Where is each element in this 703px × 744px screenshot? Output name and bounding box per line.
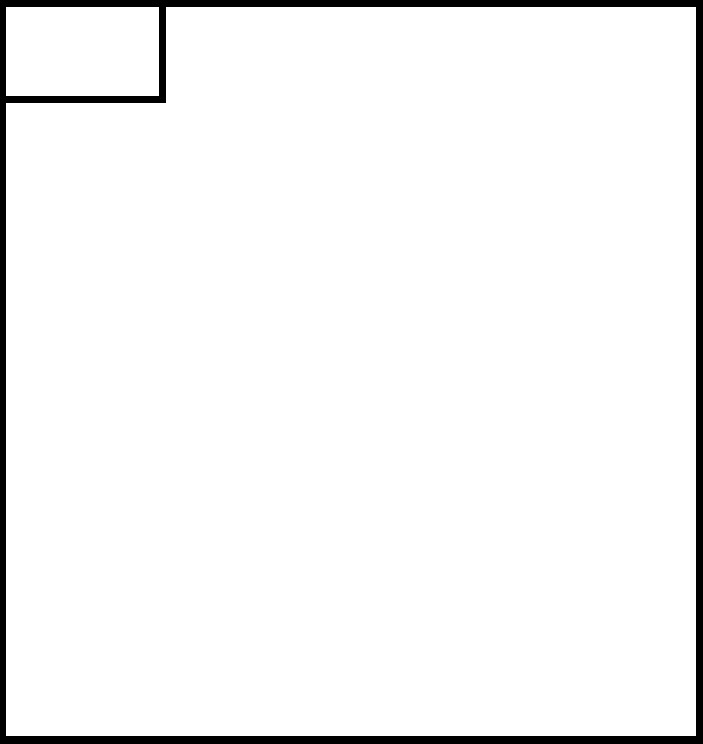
blank-canvas [0,0,703,744]
outer-border-frame [0,0,703,744]
top-left-corner-box [0,0,166,103]
